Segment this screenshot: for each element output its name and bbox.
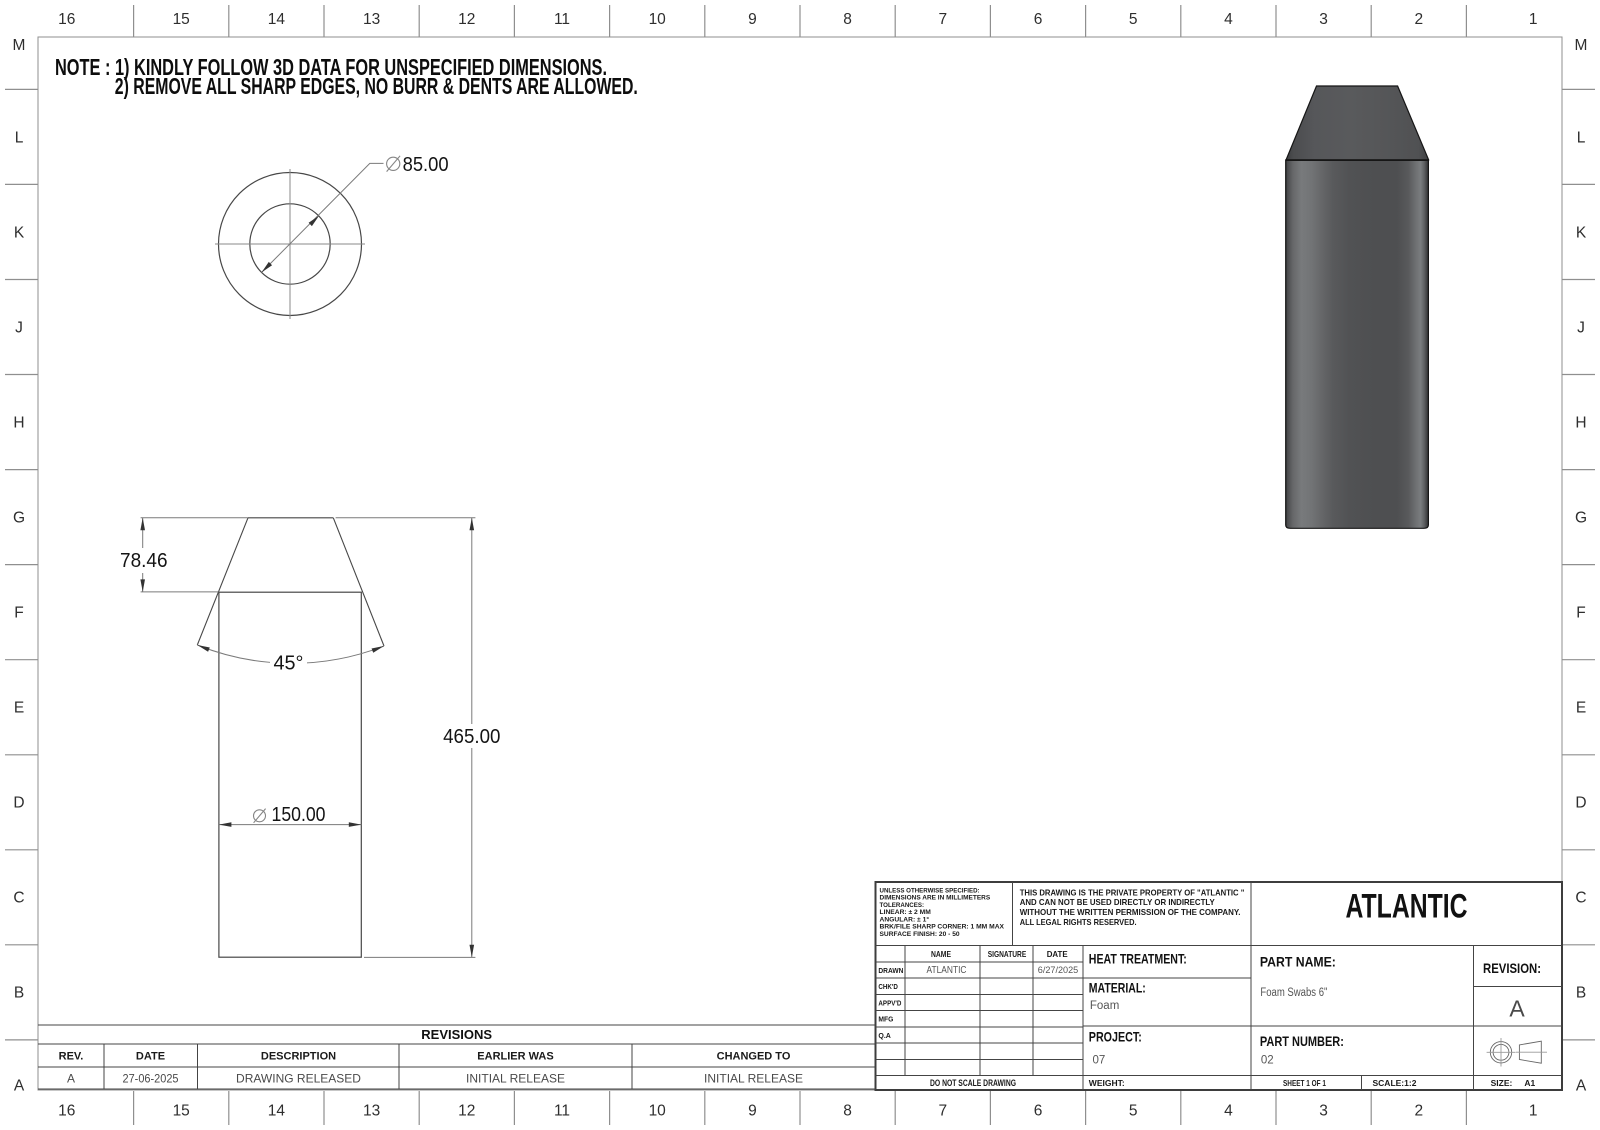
svg-text:BRK/FILE SHARP CORNER: 1 MM MA: BRK/FILE SHARP CORNER: 1 MM MAX xyxy=(880,924,1005,931)
svg-text:SHEET 1 OF 1: SHEET 1 OF 1 xyxy=(1283,1078,1326,1088)
svg-text:6/27/2025: 6/27/2025 xyxy=(1038,965,1079,976)
svg-text:13: 13 xyxy=(363,11,380,28)
svg-text:A1: A1 xyxy=(1524,1078,1535,1088)
svg-text:G: G xyxy=(1575,510,1587,527)
svg-text:5: 5 xyxy=(1129,1103,1138,1120)
svg-text:02: 02 xyxy=(1261,1055,1274,1067)
svg-text:REVISION:: REVISION: xyxy=(1483,960,1541,976)
svg-text:PART NAME:: PART NAME: xyxy=(1260,954,1336,970)
svg-text:DRAWING RELEASED: DRAWING RELEASED xyxy=(236,1072,361,1086)
svg-text:8: 8 xyxy=(843,1103,852,1120)
svg-text:A: A xyxy=(1576,1077,1587,1094)
svg-text:15: 15 xyxy=(173,11,190,28)
svg-text:Foam Swabs 6": Foam Swabs 6" xyxy=(1260,987,1327,999)
svg-text:8: 8 xyxy=(843,11,852,28)
svg-text:14: 14 xyxy=(268,1103,286,1120)
svg-text:K: K xyxy=(1576,224,1587,241)
svg-text:DO NOT SCALE DRAWING: DO NOT SCALE DRAWING xyxy=(930,1078,1016,1088)
svg-text:PROJECT:: PROJECT: xyxy=(1089,1029,1142,1045)
svg-text:REV.: REV. xyxy=(59,1051,84,1063)
svg-text:9: 9 xyxy=(748,1103,757,1120)
svg-text:K: K xyxy=(14,224,25,241)
svg-text:WITHOUT THE WRITTEN PERMISSION: WITHOUT THE WRITTEN PERMISSION OF THE CO… xyxy=(1020,908,1241,917)
svg-text:7: 7 xyxy=(938,11,947,28)
svg-text:85.00: 85.00 xyxy=(403,154,449,176)
svg-text:D: D xyxy=(13,795,24,812)
svg-text:10: 10 xyxy=(649,11,667,28)
svg-text:G: G xyxy=(13,510,25,527)
svg-text:E: E xyxy=(14,700,24,717)
svg-text:DATE: DATE xyxy=(136,1051,165,1063)
svg-text:INITIAL RELEASE: INITIAL RELEASE xyxy=(466,1072,565,1086)
svg-text:E: E xyxy=(1576,700,1586,717)
svg-text:AND CAN NOT BE USED DIRECTLY O: AND CAN NOT BE USED DIRECTLY OR INDIRECT… xyxy=(1020,898,1216,907)
svg-text:465.00: 465.00 xyxy=(443,726,500,748)
svg-text:11: 11 xyxy=(554,11,570,28)
svg-text:CHK'D: CHK'D xyxy=(878,982,898,991)
svg-text:12: 12 xyxy=(458,1103,475,1120)
svg-text:DRAWN: DRAWN xyxy=(878,966,903,975)
svg-text:9: 9 xyxy=(748,11,757,28)
svg-text:LINEAR: ± 2 MM: LINEAR: ± 2 MM xyxy=(880,909,932,916)
svg-text:CHANGED TO: CHANGED TO xyxy=(717,1051,791,1063)
svg-text:4: 4 xyxy=(1224,11,1233,28)
svg-text:15: 15 xyxy=(173,1103,190,1120)
svg-text:WEIGHT:: WEIGHT: xyxy=(1089,1078,1125,1088)
svg-text:150.00: 150.00 xyxy=(272,804,326,826)
svg-text:UNLESS OTHERWISE SPECIFIED:: UNLESS OTHERWISE SPECIFIED: xyxy=(880,887,980,894)
svg-text:L: L xyxy=(1577,129,1586,146)
svg-text:16: 16 xyxy=(58,1103,75,1120)
svg-text:ALL LEGAL RIGHTS RESERVED.: ALL LEGAL RIGHTS RESERVED. xyxy=(1020,918,1137,927)
svg-text:16: 16 xyxy=(58,11,75,28)
svg-text:EARLIER WAS: EARLIER WAS xyxy=(477,1051,553,1063)
svg-text:DATE: DATE xyxy=(1047,949,1068,959)
svg-text:A: A xyxy=(67,1072,75,1086)
svg-text:F: F xyxy=(1576,605,1585,622)
svg-text:A: A xyxy=(1509,996,1525,1022)
svg-text:F: F xyxy=(14,605,23,622)
svg-text:M: M xyxy=(1575,37,1588,54)
svg-text:2: 2 xyxy=(1414,11,1423,28)
svg-text:DIMENSIONS ARE IN MILLIMETERS: DIMENSIONS ARE IN MILLIMETERS xyxy=(880,895,991,902)
svg-text:MFG: MFG xyxy=(878,1015,893,1024)
svg-text:13: 13 xyxy=(363,1103,380,1120)
svg-text:ATLANTIC: ATLANTIC xyxy=(1346,888,1468,926)
svg-text:M: M xyxy=(13,37,26,54)
svg-text:SIGNATURE: SIGNATURE xyxy=(988,949,1027,959)
svg-text:7: 7 xyxy=(938,1103,947,1120)
svg-text:J: J xyxy=(1577,319,1585,336)
svg-text:H: H xyxy=(13,414,24,431)
svg-text:1: 1 xyxy=(1529,1103,1538,1120)
svg-text:78.46: 78.46 xyxy=(120,550,168,572)
svg-text:14: 14 xyxy=(268,11,286,28)
svg-text:B: B xyxy=(1576,985,1586,1002)
svg-text:3: 3 xyxy=(1319,11,1328,28)
svg-text:MATERIAL:: MATERIAL: xyxy=(1089,980,1146,996)
svg-text:2: 2 xyxy=(1414,1103,1423,1120)
svg-text:SCALE:1:2: SCALE:1:2 xyxy=(1373,1078,1417,1088)
svg-text:Q.A: Q.A xyxy=(878,1031,891,1040)
svg-text:45°: 45° xyxy=(274,653,304,675)
svg-text:4: 4 xyxy=(1224,1103,1233,1120)
svg-text:A: A xyxy=(14,1077,25,1094)
svg-text:INITIAL RELEASE: INITIAL RELEASE xyxy=(704,1072,803,1086)
svg-text:TOLERANCES:: TOLERANCES: xyxy=(880,902,925,909)
svg-text:DESCRIPTION: DESCRIPTION xyxy=(261,1051,336,1063)
svg-text:ATLANTIC: ATLANTIC xyxy=(927,965,967,976)
svg-text:11: 11 xyxy=(554,1103,570,1120)
svg-text:PART NUMBER:: PART NUMBER: xyxy=(1260,1033,1344,1049)
svg-text:27-06-2025: 27-06-2025 xyxy=(123,1072,179,1086)
svg-text:12: 12 xyxy=(458,11,475,28)
svg-text:1: 1 xyxy=(1529,11,1538,28)
svg-text:07: 07 xyxy=(1093,1055,1106,1067)
svg-text:3: 3 xyxy=(1319,1103,1328,1120)
svg-text:6: 6 xyxy=(1034,1103,1043,1120)
svg-text:C: C xyxy=(13,890,24,907)
svg-text:2) REMOVE ALL SHARP EDGES, NO: 2) REMOVE ALL SHARP EDGES, NO BURR & DEN… xyxy=(115,73,638,99)
svg-text:REVISIONS: REVISIONS xyxy=(421,1027,492,1042)
svg-text:SURFACE FINISH: 20 - 50: SURFACE FINISH: 20 - 50 xyxy=(880,931,960,938)
svg-text:B: B xyxy=(14,985,24,1002)
svg-text:10: 10 xyxy=(649,1103,667,1120)
svg-text:H: H xyxy=(1575,414,1586,431)
svg-text:L: L xyxy=(15,129,24,146)
svg-text:J: J xyxy=(15,319,23,336)
svg-text:APPV'D: APPV'D xyxy=(878,998,901,1007)
svg-text:NAME: NAME xyxy=(931,949,951,959)
svg-text:SIZE:: SIZE: xyxy=(1491,1078,1513,1088)
svg-text:C: C xyxy=(1575,890,1586,907)
svg-text:THIS DRAWING IS THE PRIVATE PR: THIS DRAWING IS THE PRIVATE PROPERTY OF … xyxy=(1020,888,1245,897)
svg-text:D: D xyxy=(1575,795,1586,812)
svg-text:5: 5 xyxy=(1129,11,1138,28)
svg-text:HEAT TREATMENT:: HEAT TREATMENT: xyxy=(1089,951,1187,967)
svg-text:6: 6 xyxy=(1034,11,1043,28)
svg-text:Foam: Foam xyxy=(1090,1000,1119,1012)
svg-text:ANGULAR: ± 1°: ANGULAR: ± 1° xyxy=(880,916,930,924)
